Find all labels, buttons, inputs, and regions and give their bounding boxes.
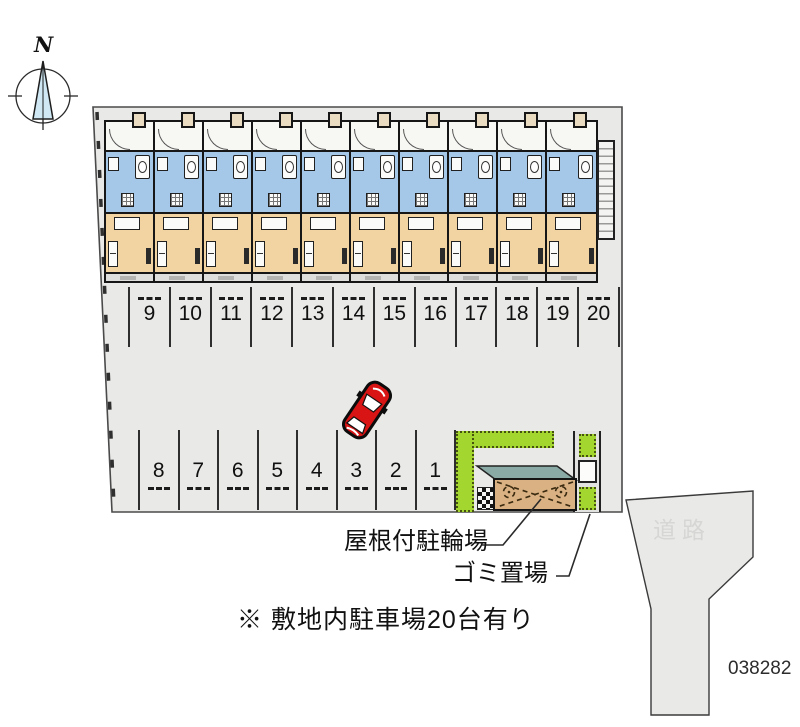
parking-space-number: 18 [505, 303, 528, 324]
washer-icon [170, 193, 183, 207]
parking-space-number: 1 [429, 460, 441, 481]
entrance-porch [377, 112, 391, 128]
unit-entrance [449, 122, 496, 152]
garbage-enclosure [573, 431, 601, 512]
parking-space-number: 3 [350, 460, 362, 481]
toilet-icon [282, 155, 297, 179]
unit-balcony [547, 272, 596, 281]
unit-balcony [106, 272, 153, 281]
parking-space: 14 [334, 287, 375, 347]
counter-icon [195, 248, 200, 264]
sink-icon [304, 157, 315, 171]
label-garbage-area: ゴミ置場 [452, 562, 548, 586]
counter-icon [244, 248, 249, 264]
bed-icon [408, 217, 434, 230]
parking-space-number: 20 [587, 303, 610, 324]
apartment-unit [204, 122, 253, 281]
parking-space: 1 [417, 430, 457, 510]
unit-entrance [547, 122, 596, 152]
parking-space-number: 4 [311, 460, 323, 481]
enclosure-gate [578, 460, 597, 483]
entrance-porch [181, 112, 195, 128]
parking-space: 7 [180, 430, 220, 510]
unit-main-room [204, 214, 251, 272]
unit-bathroom-kitchen [547, 152, 596, 214]
unit-bathroom-kitchen [204, 152, 251, 214]
unit-main-room [253, 214, 300, 272]
unit-main-room [351, 214, 398, 272]
parking-space-number: 11 [220, 303, 242, 324]
balcony-mark [414, 276, 430, 280]
unit-main-room [498, 214, 545, 272]
bed-icon [310, 217, 336, 230]
parking-space: 19 [538, 287, 579, 347]
balcony-mark [512, 276, 528, 280]
parking-space: 9 [130, 287, 171, 347]
washer-icon [268, 193, 281, 207]
unit-balcony [302, 272, 349, 281]
balcony-mark [218, 276, 234, 280]
unit-main-room [106, 214, 153, 272]
unit-balcony [498, 272, 545, 281]
apartment-unit [449, 122, 498, 281]
door-swing-arc [256, 129, 277, 150]
toilet-icon [478, 155, 493, 179]
entrance-porch [426, 112, 440, 128]
sink-icon [451, 157, 462, 171]
unit-bathroom-kitchen [498, 152, 545, 214]
parking-row-lower: 8 7 6 5 4 3 2 1 [138, 430, 456, 510]
parking-space: 8 [140, 430, 180, 510]
toilet-icon [135, 155, 150, 179]
unit-balcony [400, 272, 447, 281]
closet-icon [549, 241, 559, 267]
plan-id: 038282 [728, 659, 791, 678]
closet-icon [353, 241, 363, 267]
apartment-unit [351, 122, 400, 281]
parking-space: 15 [375, 287, 416, 347]
parking-space: 4 [298, 430, 338, 510]
counter-icon [342, 248, 347, 264]
door-swing-arc [403, 129, 424, 150]
entrance-porch [524, 112, 538, 128]
parking-space-number: 7 [192, 460, 204, 481]
parking-space: 16 [416, 287, 457, 347]
door-swing-arc [452, 129, 473, 150]
parking-space-number: 2 [390, 460, 402, 481]
bed-icon [114, 217, 140, 230]
external-staircase [597, 140, 615, 240]
unit-entrance [253, 122, 300, 152]
sink-icon [549, 157, 560, 171]
compass: N [0, 28, 95, 140]
sink-icon [108, 157, 119, 171]
toilet-icon [578, 155, 593, 179]
unit-entrance [106, 122, 153, 152]
bike-rack-pad [477, 487, 496, 510]
balcony-mark [561, 276, 577, 280]
counter-icon [391, 248, 396, 264]
apartment-unit [302, 122, 351, 281]
bed-icon [457, 217, 483, 230]
compass-north-label: N [33, 32, 54, 57]
entrance-porch [279, 112, 293, 128]
parking-space: 2 [377, 430, 417, 510]
washer-icon [464, 193, 477, 207]
door-swing-arc [109, 129, 130, 150]
counter-icon [489, 248, 494, 264]
door-swing-arc [158, 129, 179, 150]
unit-entrance [302, 122, 349, 152]
parking-space: 11 [212, 287, 253, 347]
apartment-unit [106, 122, 155, 281]
closet-icon [157, 241, 167, 267]
door-swing-arc [305, 129, 326, 150]
unit-entrance [498, 122, 545, 152]
unit-balcony [449, 272, 496, 281]
unit-main-room [547, 214, 596, 272]
balcony-mark [169, 276, 185, 280]
toilet-icon [527, 155, 542, 179]
counter-icon [440, 248, 445, 264]
parking-space-number: 9 [144, 303, 156, 324]
parking-space-number: 14 [342, 303, 365, 324]
parking-space-number: 13 [301, 303, 324, 324]
toilet-icon [380, 155, 395, 179]
parking-space: 20 [579, 287, 620, 347]
site-plan-canvas: N [0, 0, 800, 727]
balcony-mark [316, 276, 332, 280]
bed-icon [261, 217, 287, 230]
parking-row-upper: 9 10 11 12 13 14 15 16 17 18 19 20 [128, 287, 620, 347]
toilet-icon [429, 155, 444, 179]
closet-icon [304, 241, 314, 267]
unit-main-room [302, 214, 349, 272]
unit-entrance [204, 122, 251, 152]
toilet-icon [184, 155, 199, 179]
parking-space: 3 [338, 430, 378, 510]
parking-space-number: 10 [179, 303, 202, 324]
unit-bathroom-kitchen [155, 152, 202, 214]
counter-icon [293, 248, 298, 264]
bed-icon [506, 217, 532, 230]
washer-icon [219, 193, 232, 207]
closet-icon [206, 241, 216, 267]
parking-space: 10 [171, 287, 212, 347]
toilet-icon [233, 155, 248, 179]
unit-bathroom-kitchen [253, 152, 300, 214]
hedge-left [456, 431, 474, 512]
parking-space-number: 8 [153, 460, 165, 481]
unit-bathroom-kitchen [351, 152, 398, 214]
parking-space: 13 [293, 287, 334, 347]
apartment-unit [547, 122, 596, 281]
entrance-porch [230, 112, 244, 128]
apartment-building [104, 120, 598, 283]
parking-space-number: 6 [232, 460, 244, 481]
parking-space-number: 17 [464, 303, 487, 324]
apartment-unit [498, 122, 547, 281]
balcony-mark [463, 276, 479, 280]
unit-row [106, 122, 596, 281]
label-site-note: ※ 敷地内駐車場20台有り [237, 608, 535, 633]
unit-entrance [351, 122, 398, 152]
bed-icon [212, 217, 238, 230]
sink-icon [255, 157, 266, 171]
toilet-icon [331, 155, 346, 179]
washer-icon [121, 193, 134, 207]
unit-bathroom-kitchen [302, 152, 349, 214]
counter-icon [538, 248, 543, 264]
closet-icon [402, 241, 412, 267]
label-covered-bicycle-parking: 屋根付駐輪場 [344, 530, 488, 554]
sink-icon [500, 157, 511, 171]
apartment-unit [155, 122, 204, 281]
apartment-unit [400, 122, 449, 281]
shrub-icon [579, 434, 596, 457]
bed-icon [359, 217, 385, 230]
unit-main-room [155, 214, 202, 272]
entrance-porch [475, 112, 489, 128]
sink-icon [353, 157, 364, 171]
parking-space: 17 [457, 287, 498, 347]
unit-bathroom-kitchen [106, 152, 153, 214]
parking-space-number: 15 [383, 303, 406, 324]
washer-icon [317, 193, 330, 207]
sink-icon [157, 157, 168, 171]
closet-icon [108, 241, 118, 267]
parking-space-number: 12 [260, 303, 283, 324]
sink-icon [402, 157, 413, 171]
parking-space: 5 [259, 430, 299, 510]
sink-icon [206, 157, 217, 171]
washer-icon [513, 193, 526, 207]
door-swing-arc [207, 129, 228, 150]
unit-entrance [400, 122, 447, 152]
counter-icon [589, 248, 594, 264]
bed-icon [163, 217, 189, 230]
parking-space: 12 [252, 287, 293, 347]
closet-icon [500, 241, 510, 267]
unit-balcony [155, 272, 202, 281]
unit-bathroom-kitchen [449, 152, 496, 214]
counter-icon [146, 248, 151, 264]
door-swing-arc [550, 129, 571, 150]
entrance-porch [132, 112, 146, 128]
bed-icon [555, 217, 581, 230]
closet-icon [451, 241, 461, 267]
parking-space: 6 [219, 430, 259, 510]
entrance-porch [328, 112, 342, 128]
balcony-mark [120, 276, 136, 280]
unit-main-room [400, 214, 447, 272]
door-swing-arc [354, 129, 375, 150]
parking-space-number: 5 [271, 460, 283, 481]
unit-balcony [253, 272, 300, 281]
parking-space-number: 16 [424, 303, 447, 324]
balcony-mark [267, 276, 283, 280]
label-road: 道路 [653, 519, 711, 542]
washer-icon [415, 193, 428, 207]
parking-space-number: 19 [546, 303, 569, 324]
parking-space: 18 [497, 287, 538, 347]
apartment-unit [253, 122, 302, 281]
shrub-icon [579, 487, 596, 510]
door-swing-arc [501, 129, 522, 150]
washer-icon [366, 193, 379, 207]
unit-main-room [449, 214, 496, 272]
balcony-mark [365, 276, 381, 280]
unit-entrance [155, 122, 202, 152]
unit-bathroom-kitchen [400, 152, 447, 214]
entrance-porch [573, 112, 587, 128]
unit-balcony [204, 272, 251, 281]
closet-icon [255, 241, 265, 267]
washer-icon [562, 193, 575, 207]
unit-balcony [351, 272, 398, 281]
